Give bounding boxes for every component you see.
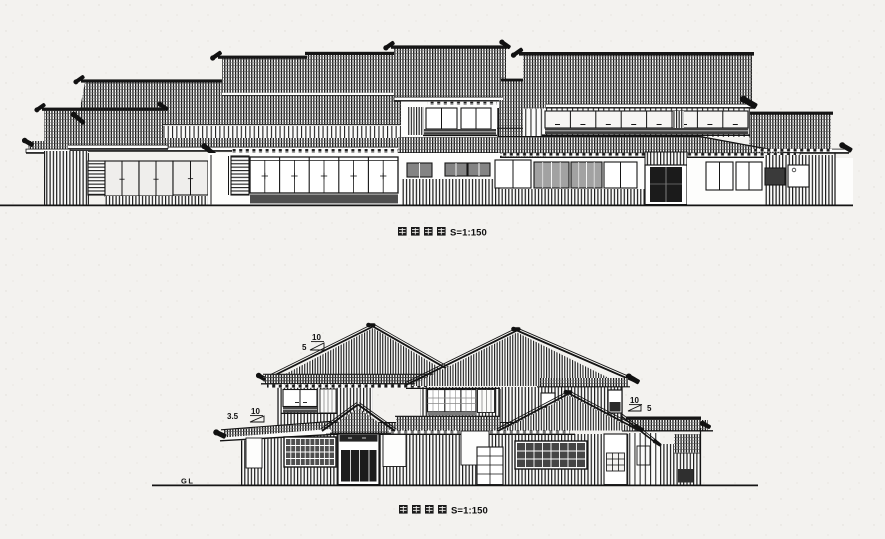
svg-text:10: 10: [630, 396, 639, 405]
svg-text:10: 10: [251, 407, 260, 416]
svg-text:S=1:150: S=1:150: [450, 228, 487, 239]
svg-text:10: 10: [312, 333, 321, 342]
svg-text:5: 5: [302, 343, 307, 352]
svg-text:GL: GL: [181, 477, 194, 486]
svg-text:S=1:150: S=1:150: [451, 506, 488, 517]
svg-text:3.5: 3.5: [227, 412, 239, 421]
svg-text:5: 5: [647, 404, 652, 413]
